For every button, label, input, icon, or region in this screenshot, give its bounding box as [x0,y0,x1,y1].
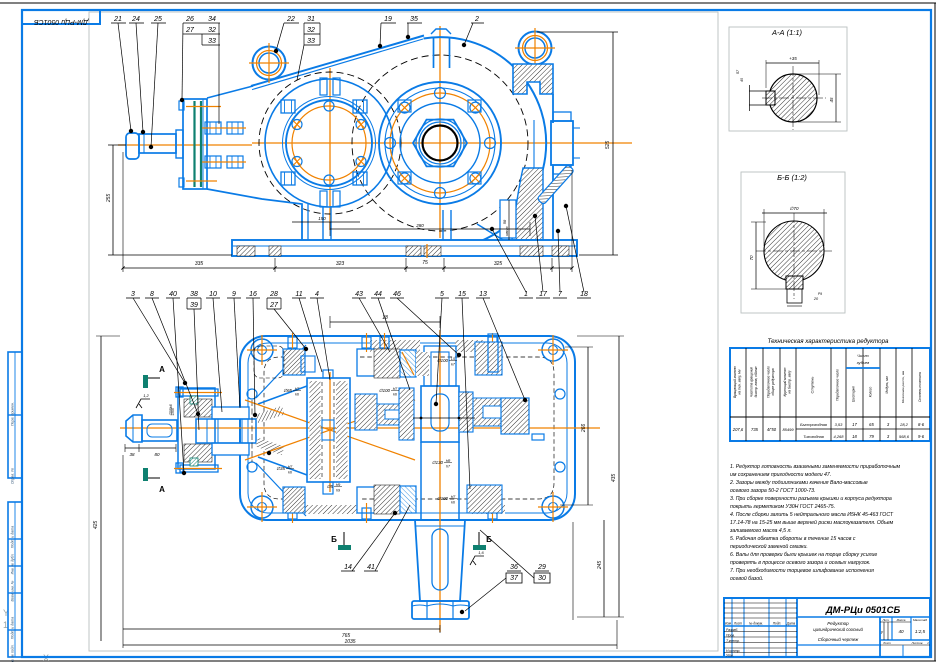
svg-text:проверять в процессе осевого з: проверять в процессе осевого зазора и ос… [730,560,871,566]
svg-text:325: 325 [494,261,503,267]
svg-text:568,6: 568,6 [899,434,910,439]
svg-text:Справ. №: Справ. № [10,468,14,484]
svg-text:5: 5 [440,291,444,298]
svg-text:Вращающий момент: Вращающий момент [733,366,737,398]
svg-text:435: 435 [611,474,617,483]
svg-text:1035: 1035 [344,639,355,645]
svg-text:29: 29 [537,564,546,571]
svg-text:2: 2 [474,16,479,23]
svg-text:∅100: ∅100 [379,388,391,393]
svg-text:18: 18 [382,315,388,321]
svg-text:+35: +35 [789,56,797,61]
svg-text:27: 27 [269,302,279,309]
svg-text:17: 17 [539,291,548,298]
svg-text:425: 425 [93,521,99,530]
svg-text:Инв. № дубл.: Инв. № дубл. [10,554,14,575]
svg-text:h9: h9 [336,488,340,492]
svg-text:k6: k6 [451,500,455,504]
svg-text:39: 39 [190,302,198,309]
svg-text:периодической заменой смазки.: периодической заменой смазки. [730,543,808,550]
svg-text:4Г50: 4Г50 [767,427,777,432]
svg-text:Н.контр.: Н.контр. [726,649,740,653]
svg-text:1,6: 1,6 [478,550,484,555]
svg-text:Техническая характеристика ред: Техническая характеристика редуктора [768,338,890,345]
svg-text:Тихоходная: Тихоходная [803,435,823,439]
svg-text:24: 24 [131,16,140,23]
svg-text:Частота вращения: Частота вращения [750,367,754,397]
svg-text:k6: k6 [295,392,299,396]
svg-text:3. При сборке поверхности разъ: 3. При сборке поверхности разъема крышки… [730,496,892,502]
svg-text:Т.контр.: Т.контр. [726,639,740,643]
svg-text:21: 21 [113,16,122,23]
svg-text:общее редуктора: общее редуктора [771,368,775,395]
svg-text:Б-Б (1:2): Б-Б (1:2) [777,173,807,182]
svg-text:1,2: 1,2 [143,393,149,398]
svg-text:k6: k6 [288,470,292,474]
svg-text:80: 80 [154,452,160,457]
svg-text:∅35k6: ∅35k6 [169,403,173,415]
svg-text:75: 75 [422,260,428,266]
svg-text:41: 41 [367,564,375,571]
svg-text:245: 245 [597,561,603,571]
svg-text:19: 19 [384,16,392,23]
svg-text:15: 15 [458,291,466,298]
svg-text:на тих. валу, Нм: на тих. валу, Нм [738,369,742,395]
svg-text:9-6: 9-6 [918,434,925,439]
svg-text:33: 33 [208,38,216,45]
svg-text:10: 10 [209,291,217,298]
svg-text:А: А [159,365,165,374]
svg-text:№ докум.: № докум. [749,622,763,626]
svg-text:3,53: 3,53 [835,422,844,427]
svg-text:ДМ-РЦи 0501СБ: ДМ-РЦи 0501СБ [34,18,89,25]
svg-text:7. При необходимости торцево: 7. При необходимости торцевое шлифование… [730,568,874,574]
svg-text:Пров.: Пров. [726,634,735,638]
svg-text:45: 45 [829,97,834,103]
svg-text:40: 40 [169,291,177,298]
svg-text:P9: P9 [818,292,822,296]
svg-text:266: 266 [581,424,587,434]
svg-text:А-А (1:1): А-А (1:1) [771,28,803,37]
svg-text:2. Зазоры между подшипниками: 2. Зазоры между подшипниками качения Вал… [729,480,868,486]
svg-text:∅70: ∅70 [790,206,799,211]
svg-text:Крутящий момент: Крутящий момент [783,367,787,396]
svg-text:осевого зазора 50-2 ГОСТ 1000-: осевого зазора 50-2 ГОСТ 1000-73. [730,488,815,494]
svg-text:14: 14 [344,564,352,571]
svg-text:32: 32 [307,27,315,34]
svg-text:46: 46 [393,291,401,298]
svg-text:Колесо: Колесо [869,387,873,398]
svg-text:Разраб.: Разраб. [726,628,738,632]
svg-text:31: 31 [307,16,315,23]
svg-text:Инв. № подл.: Инв. № подл. [10,644,14,662]
svg-text:85499: 85499 [782,427,794,432]
svg-text:70: 70 [749,255,754,261]
svg-text:Изм: Изм [725,622,732,626]
svg-text:34: 34 [208,16,216,23]
svg-text:30: 30 [538,575,546,582]
svg-text:заливаемого масла 4,5 л.: заливаемого масла 4,5 л. [729,528,792,534]
svg-text:40: 40 [898,629,904,634]
svg-text:Степень точности: Степень точности [918,372,922,402]
svg-text:осевой базой.: осевой базой. [730,575,763,582]
svg-text:покрыть герметиком У30Н ГОСТ 2: покрыть герметиком У30Н ГОСТ 2465-75. [730,504,835,510]
svg-text:35: 35 [410,16,418,23]
svg-text:525: 525 [605,141,611,150]
svg-text:Лит.: Лит. [881,618,889,622]
svg-text:335: 335 [195,261,204,267]
svg-text:28,2: 28,2 [899,422,909,427]
svg-text:150: 150 [318,216,326,221]
svg-text:Лист: Лист [882,641,891,645]
svg-text:9: 9 [232,291,236,298]
svg-text:27: 27 [185,27,195,34]
svg-text:37: 37 [510,575,519,582]
svg-text:Сборочный чертеж: Сборочный чертеж [818,637,860,642]
svg-text:∅5: ∅5 [327,484,334,489]
svg-text:5. Рабочая обкатка обороты: 5. Рабочая обкатка обороты в течение 15 … [730,536,856,542]
svg-text:280: 280 [415,223,424,228]
svg-text:18: 18 [580,291,588,298]
svg-text:36: 36 [510,564,518,571]
svg-text:зубьев: зубьев [856,360,869,365]
svg-text:Перв. примен.: Перв. примен. [10,402,14,426]
svg-text:4: 4 [315,291,319,298]
svg-text:Передаточное число: Передаточное число [767,366,771,398]
svg-text:Листов: Листов [911,641,923,645]
svg-text:45: 45 [740,78,744,82]
svg-text:Масса: Масса [897,618,906,622]
svg-text:∅65: ∅65 [283,388,292,393]
svg-text:79: 79 [869,434,874,439]
svg-text:Утв.: Утв. [726,654,734,658]
svg-text:8-6: 8-6 [918,422,925,427]
svg-text:16: 16 [249,291,257,298]
svg-text:65: 65 [869,422,874,427]
svg-text:на быстр. валу: на быстр. валу [788,370,792,393]
svg-text:1:2,5: 1:2,5 [915,629,926,634]
svg-text:6. Валы для проверки были: 6. Валы для проверки были крышек на торц… [730,552,877,558]
svg-text:43: 43 [355,291,363,298]
svg-text:масло: масло [505,226,509,235]
svg-text:∅100: ∅100 [437,496,449,501]
svg-text:k6: k6 [393,392,397,396]
svg-text:207,6: 207,6 [732,427,744,432]
svg-text:1. Редуктор готовность взаим: 1. Редуктор готовность взаимными заменяе… [730,464,901,470]
svg-text:4,268: 4,268 [833,434,844,439]
svg-text:38: 38 [190,291,198,298]
svg-text:Число: Число [857,353,869,358]
svg-text:255: 255 [106,194,112,204]
svg-text:13: 13 [479,291,487,298]
svg-text:Шестерня: Шестерня [852,386,856,402]
svg-text:8: 8 [150,291,154,298]
svg-text:4. После сборки залить 5 нейтр: 4. После сборки залить 5 нейтрального ма… [730,511,894,518]
svg-text:Дата: Дата [786,622,796,626]
svg-text:Подп.: Подп. [773,622,782,626]
svg-text:22: 22 [286,16,295,23]
svg-text:Подп. и дата: Подп. и дата [10,617,14,640]
svg-text:20: 20 [813,297,819,301]
svg-text:∅130: ∅130 [432,460,444,465]
svg-text:58: 58 [502,219,507,224]
svg-text:Масштаб: Масштаб [913,618,927,622]
svg-text:ДМ-РЦи 0501СБ: ДМ-РЦи 0501СБ [825,605,901,616]
svg-text:Быстроходная: Быстроходная [800,423,827,427]
svg-text:17.14-78 на 15-25 мм выше верх: 17.14-78 на 15-25 мм выше верхней риски … [730,519,894,526]
svg-text:3: 3 [131,291,135,298]
svg-text:А: А [159,485,165,494]
svg-text:Межосевое расст., мм: Межосевое расст., мм [901,371,905,403]
svg-text:Редуктор: Редуктор [827,621,849,626]
svg-text:323: 323 [336,261,345,267]
svg-text:26: 26 [185,16,194,23]
svg-text:Модуль, мм: Модуль, мм [885,376,889,394]
svg-text:25: 25 [153,16,162,23]
svg-text:быстр. вала, об/мин: быстр. вала, об/мин [754,366,758,397]
svg-text:Подп. и дата: Подп. и дата [10,526,14,549]
svg-text:∅35: ∅35 [276,466,285,471]
svg-text:17: 17 [852,422,857,427]
svg-text:им сохранением пригодности мод: им сохранением пригодности модели 47. [730,472,831,478]
svg-text:Ступень: Ступень [810,377,815,394]
svg-text:38: 38 [129,452,135,457]
svg-text:28: 28 [269,291,278,298]
svg-text:Взам. инв. №: Взам. инв. № [10,580,14,601]
svg-text:Передаточное число: Передаточное число [836,369,840,401]
svg-text:735: 735 [751,427,759,432]
svg-text:1: 1 [524,291,528,298]
svg-text:11: 11 [295,291,302,298]
svg-text:44: 44 [374,291,382,298]
svg-text:Б: Б [331,535,337,544]
svg-text:цилиндрический соосный: цилиндрический соосный [813,627,863,632]
svg-text:18: 18 [852,434,857,439]
svg-text:Лист: Лист [733,622,743,626]
svg-text:32: 32 [208,27,216,34]
svg-text:33: 33 [307,38,315,45]
